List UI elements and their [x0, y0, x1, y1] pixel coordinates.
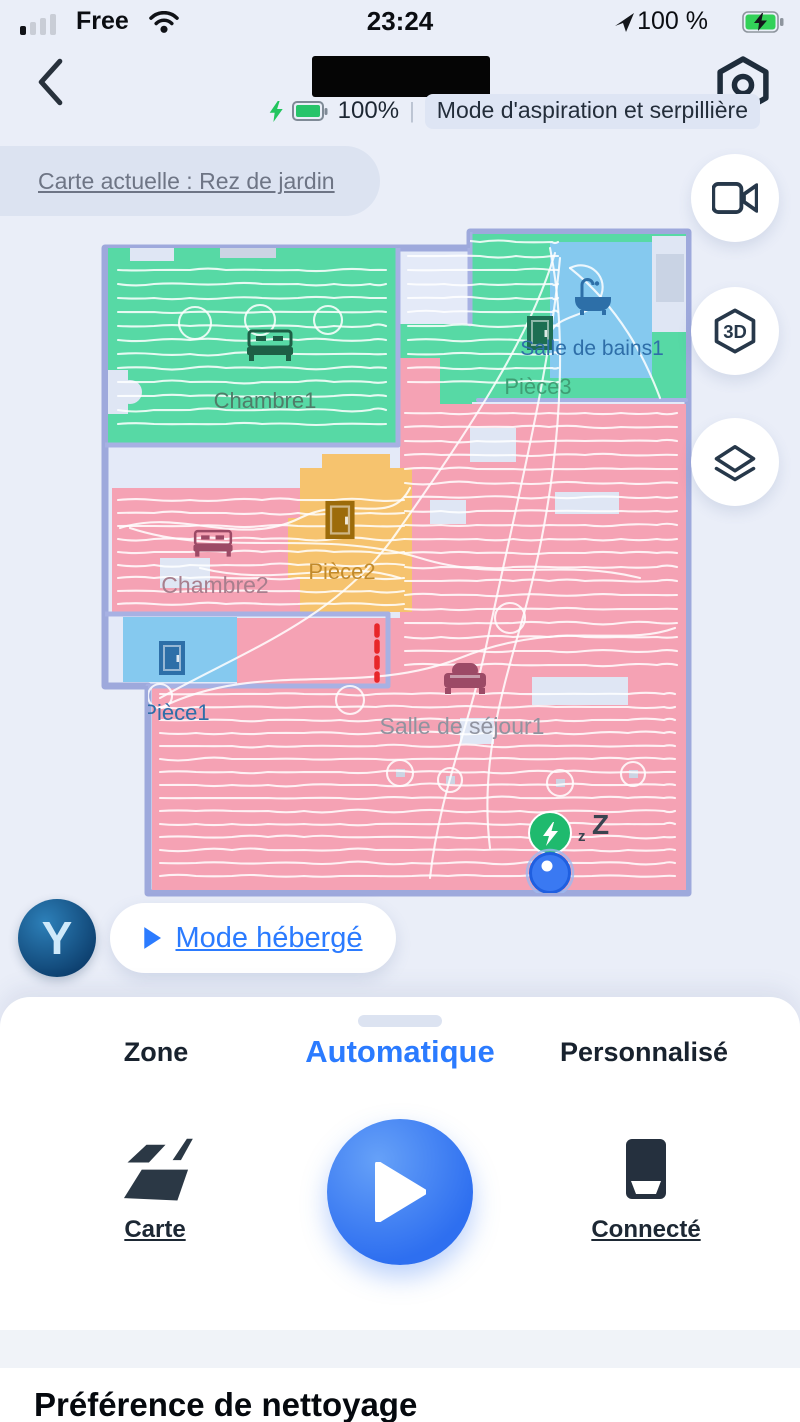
tab-zone[interactable]: Zone — [124, 1037, 189, 1068]
robot-position-marker — [527, 850, 573, 896]
tab-automatique[interactable]: Automatique — [305, 1034, 494, 1070]
battery-percent-label: 100 % — [637, 7, 708, 36]
cleaning-map[interactable]: Chambre1 Salle de bains1 Pièce3 Chambre2… — [100, 228, 692, 897]
room-label: Salle de séjour1 — [380, 713, 545, 739]
robot-avatar[interactable]: Y — [18, 899, 96, 977]
room-label: Pièce3 — [504, 374, 571, 399]
hosted-mode-label: Mode hébergé — [175, 922, 362, 955]
video-camera-icon — [712, 181, 758, 215]
dock-button-label[interactable]: Connecté — [591, 1216, 700, 1244]
robot-battery-icon — [292, 100, 330, 122]
3d-view-button[interactable]: 3D — [691, 287, 779, 375]
section-divider — [0, 1330, 800, 1368]
play-icon — [374, 1162, 426, 1222]
mode-tabs: Zone Automatique Personnalisé — [0, 1037, 800, 1087]
device-name-redacted — [312, 56, 490, 97]
play-triangle-icon — [143, 927, 161, 949]
layers-button[interactable] — [691, 418, 779, 506]
app-screen: Free 23:24 100 % — [0, 0, 800, 1422]
room-label: Chambre1 — [214, 388, 317, 413]
battery-charging-icon — [742, 11, 786, 33]
status-bar: Free 23:24 100 % — [0, 0, 800, 44]
3d-view-icon: 3D — [711, 306, 759, 356]
avatar-letter: Y — [42, 911, 73, 965]
video-camera-button[interactable] — [691, 154, 779, 242]
dock-station-button[interactable] — [618, 1134, 674, 1206]
start-cleaning-button[interactable] — [327, 1119, 473, 1265]
door-icon — [159, 641, 185, 675]
map-button-label[interactable]: Carte — [124, 1216, 185, 1244]
robot-battery-label: 100% — [338, 97, 399, 125]
3d-label: 3D — [723, 321, 747, 342]
charging-bolt-icon — [269, 101, 284, 122]
room-label: Salle de bains1 — [520, 337, 664, 360]
cleaning-mode-badge: Mode d'aspiration et serpillière — [425, 94, 760, 129]
map-button[interactable] — [118, 1136, 194, 1208]
sheet-drag-handle[interactable] — [358, 1015, 442, 1027]
charging-dock-marker — [529, 812, 571, 854]
sleep-indicator-small: z — [578, 828, 586, 845]
room-label: Chambre2 — [161, 572, 268, 598]
room-label: Pièce1 — [142, 700, 209, 725]
current-map-banner[interactable]: Carte actuelle : Rez de jardin — [0, 146, 380, 216]
robot-status-row: 100% | Mode d'aspiration et serpillière — [0, 94, 760, 128]
location-arrow-icon — [612, 10, 636, 34]
divider: | — [407, 98, 417, 124]
hosted-mode-button[interactable]: Mode hébergé — [110, 903, 396, 973]
door-icon — [325, 501, 354, 539]
current-map-label: Carte actuelle : Rez de jardin — [38, 168, 335, 195]
tab-personnalise[interactable]: Personnalisé — [560, 1037, 728, 1068]
layers-icon — [711, 440, 759, 484]
sleep-indicator-big: Z — [592, 809, 609, 840]
room-label: Pièce2 — [308, 559, 375, 584]
section-heading: Préférence de nettoyage — [34, 1386, 417, 1422]
